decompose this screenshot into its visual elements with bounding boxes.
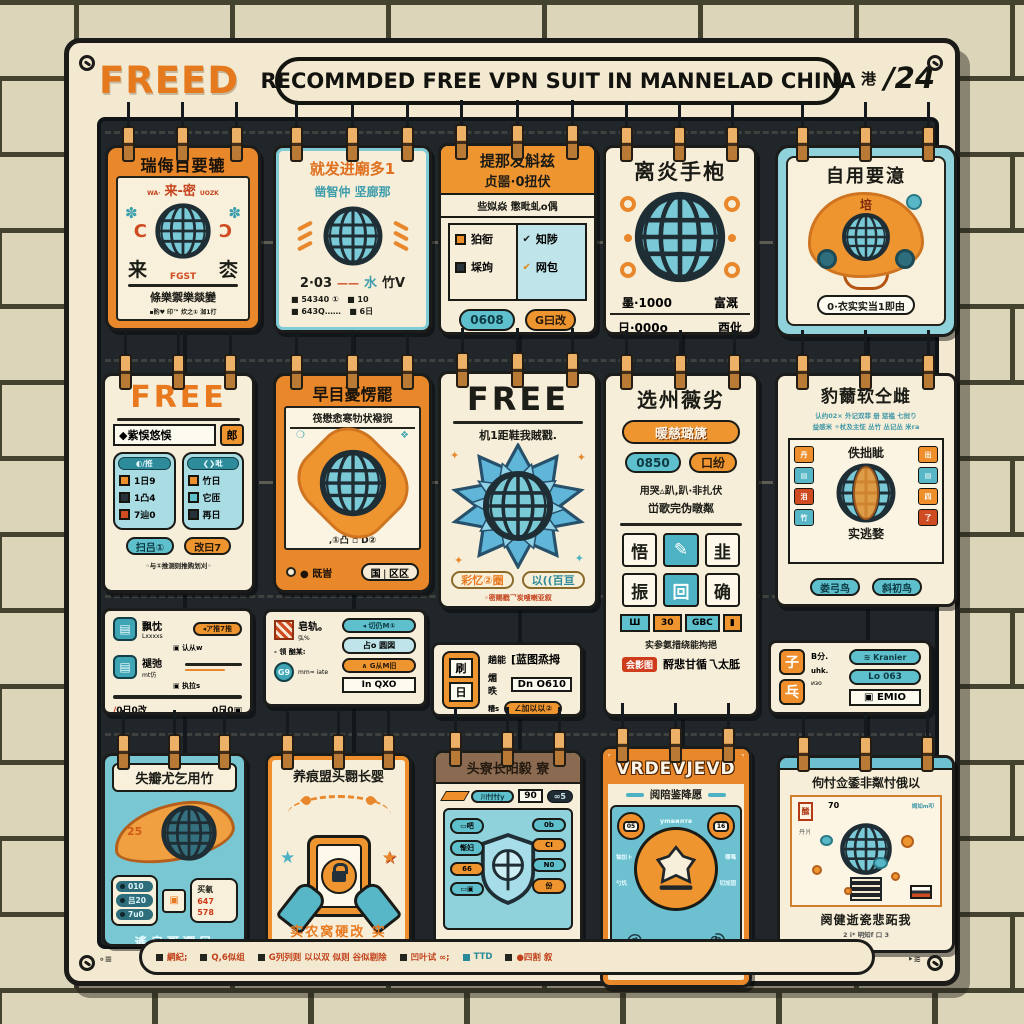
row-title: 褪弛 [142, 655, 180, 670]
card-vpn-r3c3: 头寮长阳毅 寮 川忖忖y 90 ∞5 ▭吧 惭妇 66 [433, 750, 583, 968]
plan-row: 竹日 [203, 474, 221, 487]
plan-row: 再日 [203, 508, 221, 521]
side-cell: 竹 [794, 509, 814, 526]
tiny-pill: 川忖忖y [471, 790, 514, 803]
side-text: 铀加卜 [616, 853, 633, 861]
emblem-circle [634, 827, 718, 911]
dash-icon [708, 793, 726, 797]
clothespin-icon [290, 354, 303, 390]
strip-cell: GBC [685, 614, 720, 632]
clothespin-icon [674, 354, 687, 390]
value-box: Dn O610 [511, 677, 572, 692]
globe-label: FGST [170, 272, 196, 282]
stat-row: 买氡 [197, 884, 231, 895]
stat-glyph: 水 [364, 272, 377, 291]
badge-pill: Lо 063 [849, 669, 921, 685]
screw-icon [79, 55, 95, 71]
mini-pill: 05 [623, 821, 639, 832]
card-vpn-r3c2: 养痕盟头翾长婴 ★ ★ 实农窝硬改 实 [265, 753, 412, 953]
clothespin-icon [290, 126, 303, 162]
stat-pill: 吕20 [116, 894, 153, 907]
badge-pill: 以((百亘 [522, 571, 585, 589]
dark-pill: ∞5 [547, 790, 573, 803]
clothespin-icon [122, 126, 135, 162]
side-chip: 惭妇 [450, 840, 484, 856]
clothespin-icon [346, 354, 359, 390]
clothespin-icon [797, 736, 810, 772]
globe-icon [159, 803, 219, 863]
list-item: 网包 [536, 259, 558, 275]
feature-row: 條樂禦樂燚變 [118, 289, 248, 305]
card-footer: 实农窝硬改 实 [272, 921, 405, 940]
clothespin-icon [669, 727, 682, 763]
corner-circle-icon: 05 [617, 812, 645, 840]
bullet-icon [455, 234, 466, 245]
row-title: 飘忱 [142, 618, 188, 633]
row-badge: ◂ア推7推 [193, 622, 242, 636]
clothespin-icon [553, 731, 566, 767]
card-body: 筏懋悆寒牞状襏猊 ❍ ❖ ‚①凸 ▫ D② [284, 406, 421, 550]
card-title: 自用要澺 [788, 162, 944, 188]
clothespin-icon [859, 354, 872, 390]
globe-icon [838, 821, 894, 877]
clothespin-icon [796, 126, 809, 162]
stat-pill: 010 [116, 881, 153, 892]
footer-right: 0日0▣ [212, 703, 242, 712]
dot-icon [728, 234, 736, 242]
app-tile: 振 [622, 573, 657, 607]
card-footnote: ◦与①推测则推购划刈◦ [105, 560, 252, 570]
card-footer-band: ● 既旹 国❘区区 [276, 554, 429, 590]
plan-panel: ◐∕拰 1日9 1凸4 7辿0 [113, 452, 176, 530]
card-title: 佝忖佥鋈非粼忖俄以 [780, 774, 952, 791]
lens-overlay-icon [853, 466, 879, 520]
footer-pill: 国❘区区 [361, 563, 419, 581]
deco-glyph: ❍ [296, 430, 305, 441]
mini-box: ▣ [162, 889, 186, 913]
ring-icon [724, 196, 740, 212]
app-tile: ✎ [663, 533, 698, 567]
glyph-right: 枩 [219, 255, 238, 282]
dash-icon [626, 793, 644, 797]
hanging-stick [183, 717, 187, 757]
ring-icon [620, 196, 636, 212]
bullet-icon [400, 954, 407, 961]
clothespin-icon [922, 354, 935, 390]
side-text: 勺饥 [616, 879, 627, 887]
globe-icon [153, 201, 213, 261]
row-sub: 弘% [298, 633, 328, 642]
server-icon: ▤ [113, 617, 137, 641]
side-cell: 出 [918, 446, 938, 463]
badge-pill: 口纷 [689, 452, 737, 473]
stat-left: 墨·1000 [622, 294, 672, 311]
value-box: 90 [518, 789, 543, 803]
clothespin-icon [332, 734, 345, 770]
card-vpn-r1c5: 自用要澺 培 0·衣实实当1即由 [775, 145, 957, 337]
board-stamp: 港 ∕24 [861, 61, 935, 95]
footer-left: ● 既旹 [300, 565, 332, 580]
glyph-left: 来 [128, 255, 147, 282]
red-badge: 会影图 [622, 657, 657, 672]
stat-dash: —— [337, 277, 359, 290]
clothespin-icon [281, 734, 294, 770]
row-sub: mt仿 [142, 670, 180, 679]
footer-left: 0日0改 [116, 706, 147, 712]
info-strip: 筏懋悆寒牞状襏猊 [290, 410, 415, 429]
bullet-icon [119, 492, 130, 503]
app-tile: 韭 [705, 533, 740, 567]
bullet-icon [455, 262, 466, 273]
clothespin-icon [620, 126, 633, 162]
rays-icon [297, 224, 313, 248]
orange-blob-icon: 培 [808, 192, 924, 278]
strip-cell: Ш [620, 614, 650, 632]
app-icon: 子 [779, 649, 805, 675]
card-subtitle: 贞噐·0扭伏 [441, 171, 594, 190]
strip-cell: 30 [653, 614, 683, 632]
stat-pill: 7u0 [116, 909, 153, 920]
board-logo: FREED [99, 59, 239, 102]
wire-dash [259, 481, 273, 484]
card-footnote: ▪酌♥ 印™ 炊之① 洳1打 [118, 307, 248, 316]
plan-panel: ❮❯吡 竹日 它匝 再日 [182, 452, 245, 530]
legend-item: 凹叶试 ∞; [400, 951, 450, 963]
clothespin-icon [346, 126, 359, 162]
bar-line-orange [185, 669, 225, 671]
card-footer: 阕健逝瓷悲跖我 [780, 911, 952, 928]
panel-header-pill: ◐∕拰 [118, 457, 171, 470]
row-extra: ▣ 执拉s [173, 681, 242, 691]
side-cell: ▤ [918, 467, 938, 484]
app-icon: 乓 [779, 679, 805, 705]
badge-box: 郎 [220, 424, 244, 446]
clothespin-icon [922, 126, 935, 162]
app-tile: 悟 [622, 533, 657, 567]
bulletin-board: FREED RECOMMDED FREE VPN SUIT IN MANNELA… [64, 38, 960, 986]
screw-icon [79, 955, 95, 971]
stat-time: 2·03 [300, 276, 332, 291]
side-chip: ▭▣ [450, 882, 484, 896]
badge-pill: ◂ 切仍M① [342, 618, 416, 633]
card-vpn-r3c1: 失瓣尤乞用竹 25 010 吕20 7u0 ▣ 买氡 647 578 遙 [102, 753, 247, 947]
icon-cell: 刷 [449, 658, 473, 678]
clothespin-icon [168, 734, 181, 770]
bar-line [185, 663, 242, 666]
bullet-icon [200, 954, 207, 961]
strip-cell: ▮ [723, 614, 742, 632]
footer-mark: ∘≡ [99, 955, 112, 965]
icon-cell: 日 [449, 682, 473, 702]
badge-pill: 改曰7 [184, 537, 231, 555]
dot-icon [286, 567, 296, 577]
plan-row: 1日9 [134, 474, 156, 487]
badge-pill: ∠加以以② [504, 701, 562, 714]
stat-right: 富溉 [714, 294, 738, 311]
bullet-icon [258, 954, 265, 961]
side-chip: 66 [450, 862, 484, 876]
wire-dash [759, 241, 773, 244]
badge-pill: 0850 [625, 452, 681, 473]
knot-icon: ✽ [125, 204, 138, 222]
stamp-glyph: 港 [861, 68, 876, 89]
row-extra: ▣ 认从w [173, 643, 242, 653]
flag-icon [910, 885, 932, 899]
bullet-icon [156, 954, 163, 961]
clothespin-icon [117, 734, 130, 770]
server-icon: ▤ [113, 655, 137, 679]
legend-item: ●四割 叙 [505, 951, 552, 963]
lock-icon [332, 871, 346, 882]
info-box: ◆紫悞悠悞 [113, 424, 216, 446]
badge-circle-icon [817, 249, 837, 269]
card-subtitle: 凿智仲 坚廊那 [279, 183, 426, 200]
side-chip: N0 [532, 858, 566, 872]
hanging-stick [352, 709, 356, 755]
clothespin-icon [176, 126, 189, 162]
board-title-banner: RECOMMDED FREE VPN SUIT IN MANNELAD CHIN… [275, 57, 841, 105]
stat-panel: 买氡 647 578 [190, 878, 238, 923]
bullet-icon [188, 475, 199, 486]
dot-icon [624, 234, 632, 242]
clothespin-icon [456, 352, 469, 388]
card-vpn-r1c3: 提那发斛兹 贞噐·0扭伏 些姒焱 懲毗虬о偶 狛衐 埰竘 ✔知陟 ✔网包 060… [438, 143, 597, 335]
clothespin-icon [728, 354, 741, 390]
card-footnote: 2 i* 明知f 口 3 [780, 929, 952, 939]
knot-icon: ✽ [228, 204, 241, 222]
tiny-line: 益感米 ÷杖及主怔 丛竹 丛记丛 米га [778, 421, 954, 431]
row-sub: Lxxxxs [142, 633, 188, 640]
clothespin-icon [230, 126, 243, 162]
clothespin-icon [511, 352, 524, 388]
side-cell: 丹 [794, 446, 814, 463]
badge-pill: 扫吕① [126, 537, 174, 555]
badge-pill: ∧ G从M旧 [342, 658, 416, 673]
badge-pill: G曰改 [525, 309, 576, 331]
card-subtitle: 来-密 [164, 180, 195, 199]
plan-row: 7辿0 [134, 508, 156, 521]
corner-circle-icon: 16 [707, 812, 735, 840]
side-chip: ▭吧 [450, 818, 484, 834]
poncho-icon [647, 840, 705, 898]
card-vpn-r2c1: FREE ◆紫悞悠悞 郎 ◐∕拰 1日9 1凸4 7辿0 ❮❯吡 竹日 它匝 再… [102, 373, 255, 593]
info-strip: 些姒焱 懲毗虬о偶 [441, 195, 594, 218]
white-chip: In QXO [342, 677, 416, 693]
stat-panel: 010 吕20 7u0 [111, 875, 158, 926]
footer-line: 酹悲甘循乁太胝 [663, 656, 740, 672]
side-chip: 份 [532, 878, 566, 894]
badge-pill: 0608 [459, 309, 515, 331]
circle-icon: G9 [274, 662, 294, 682]
footer-mark: ‣≋ [908, 955, 921, 965]
plan-row: 1凸4 [134, 491, 156, 504]
screw-icon [927, 55, 943, 71]
card-note-m1: ▤ 飘忱 Lxxxxs ◂ア推7推 ▣ 认从w ▤ 褪弛 mt仿 ▣ [102, 608, 253, 715]
clothespin-icon [566, 124, 579, 160]
legend-item: TTD [463, 952, 493, 962]
bullet-icon [188, 492, 199, 503]
clothespin-icon [616, 727, 629, 763]
strip-text: 阅陪鉴降愿 [650, 787, 703, 802]
clothespin-icon [722, 727, 735, 763]
row-text: B分. [811, 651, 843, 662]
lock-circle-icon [321, 858, 357, 894]
blob-glyph: 培 [811, 195, 921, 213]
hanging-stick [518, 611, 522, 645]
clothespin-icon [859, 736, 872, 772]
card-vpn-r1c1: 瑞侮目要辘 WA· 来-密 UOZK ✽ ✽ C Ɔ 来 FGST 枩 [105, 145, 261, 331]
tiny-label: 丹爿 [799, 827, 811, 836]
clothespin-icon [566, 352, 579, 388]
side-cell: 了 [918, 509, 938, 526]
globe-icon [317, 447, 389, 519]
card-body: WA· 来-密 UOZK ✽ ✽ C Ɔ 来 FGST 枩 條樂禦樂燚變 [116, 176, 250, 321]
card-note-m3: 刷 日 趟能 [蓝图烝拇 煝昳 Dn O610 糟s ∠加以以② [431, 642, 583, 717]
tiny-label: 姆如m叩 [912, 802, 934, 810]
row-text: - 领 酗某: [274, 647, 334, 657]
tag-right: UOZK [200, 190, 219, 197]
mini-pill: 16 [713, 821, 729, 832]
blob-icon [820, 835, 833, 846]
stat-row: 578 [197, 908, 231, 917]
coin-icon [812, 865, 822, 875]
info-line: 用哭▵趴,趴·非扎伏 [606, 482, 756, 497]
slash-icon [440, 791, 470, 801]
wire-dash [259, 241, 273, 244]
bullet-icon [188, 509, 199, 520]
clothespin-icon [921, 736, 934, 772]
tag-left: WA· [147, 190, 160, 197]
teal-chip: 占о 圆図 [342, 637, 416, 654]
badge-circle-icon [895, 249, 915, 269]
ring-icon [620, 262, 636, 278]
card-vpn-r1c4: 离炎手枹 墨·1000 富溉 日·000о 酉仳 [603, 145, 757, 335]
card-footnote: ◦密赐戳乛炭嗖喇亚叙 [441, 593, 595, 603]
feature-panel: 佚拙眦 实逃婺 丹 ▤ 泪 竹 出 ▤ 四 了 [788, 438, 944, 564]
wave-badge: 25 [127, 825, 142, 838]
stat-row: 647 [197, 897, 231, 906]
panel-header-pill: ❮❯吡 [187, 457, 240, 470]
clothespin-icon [620, 354, 633, 390]
bullet-icon [119, 509, 130, 520]
hanging-stick [866, 609, 870, 643]
stamp-cell: 䤉 [798, 802, 813, 821]
legend-item: G列列则 以以双 似则 谷似剔除 [258, 951, 387, 963]
globe-icon [480, 468, 556, 544]
row-label: 糟s [488, 704, 499, 714]
clothespin-icon [449, 731, 462, 767]
tablet-illustration [307, 835, 371, 917]
hanging-stick [518, 719, 522, 753]
side-chip: CI [532, 838, 566, 852]
deco-glyph: ❖ [400, 430, 409, 441]
card-note-m2: 燚 皂轨。 弘% - 领 酗某: G9 mm≈ iate ◂ 切仍M① 占о 圆… [263, 609, 427, 707]
card-vpn-r3c5: 佝忖佥鋈非粼忖俄以 䤉 70 丹爿 姆如m叩 阕健逝瓷悲跖我 2 i* 明知f … [777, 755, 955, 953]
footer-legend-bar: 網紀; Q,6似组 G列列则 以以双 似则 谷似剔除 凹叶试 ∞; TTD ●四… [139, 939, 875, 975]
side-cell: 四 [918, 488, 938, 505]
clothespin-icon [401, 126, 414, 162]
legend-item: 網紀; [156, 951, 187, 963]
card-vpn-r2c5: 豹薾软仝雌 认约02× 外记双菲 册 惩褴 七挝り 益感米 ÷杖及主怔 丛竹 丛… [775, 373, 957, 607]
feature-pill: 暖慈璐篪 [622, 420, 740, 444]
card-vpn-r2c4: 选州薇劣 暖慈璐篪 0850 口纷 用哭▵趴,趴·非扎伏 峃歌完伪暾粼 悟 ✎ … [603, 373, 759, 717]
tiny-line: 认约02× 外记双菲 册 惩褴 七挝り [778, 410, 954, 420]
badge-pill: 娄弓鸟 [810, 578, 860, 596]
white-chip: ▣ EMIO [849, 689, 921, 706]
row-value: [蓝图烝拇 [511, 651, 560, 667]
clothespin-icon [455, 124, 468, 160]
legend-item: Q,6似组 [200, 951, 244, 963]
clothespin-icon [511, 124, 524, 160]
label-70: 70 [828, 801, 839, 810]
star-icon: ★ [382, 848, 397, 868]
check-icon: ✔ [523, 234, 531, 245]
bracket-left: C [134, 221, 147, 242]
wire-dash [759, 481, 773, 484]
stat-right: 酉仳 [718, 319, 742, 332]
list-item: 埰竘 [471, 259, 493, 275]
shield-panel: ▭吧 惭妇 66 ▭▣ 0b CI N0 份 [443, 808, 573, 930]
side-text: 切加固 [719, 879, 736, 887]
clothespin-icon [796, 354, 809, 390]
illustration: 25 [111, 795, 238, 875]
bullet-icon [119, 475, 130, 486]
stamp-icon: 燚 [274, 620, 294, 640]
star-icon: ★ [280, 848, 295, 868]
row-sub: mm≈ iate [298, 669, 328, 676]
clothespin-icon [859, 126, 872, 162]
check-icon: ✔ [523, 262, 531, 273]
globe-icon [631, 188, 729, 286]
coin-icon [844, 887, 852, 895]
clothespin-icon [401, 354, 414, 390]
app-tile: 回 [663, 573, 698, 607]
badge-pill: 斜初鸟 [872, 578, 922, 596]
coin-icon [891, 872, 900, 881]
row-label: 煝昳 [488, 671, 506, 697]
row-label: 趟能 [488, 653, 506, 666]
info-line: 峃歌完伪暾粼 [606, 500, 756, 516]
detail-line: ■ 643Q…… ■ 6日 [279, 304, 426, 317]
clothespin-icon [501, 731, 514, 767]
clothespin-icon [119, 354, 132, 390]
side-cell: 泪 [794, 488, 814, 505]
row-text: uhk. [811, 667, 843, 675]
caption-pill: 0·衣实实当1即由 [817, 295, 915, 315]
card-note-m4: 子 乓 B分. uhk. изо ≋ Kranier Lо 063 ▣ EMIO [768, 640, 932, 715]
app-tile: 确 [705, 573, 740, 607]
clothespin-icon [382, 734, 395, 770]
plan-row: 它匝 [203, 491, 221, 504]
coin-icon [901, 835, 914, 848]
info-line: 实参氨措绕能拘挹 [606, 638, 756, 651]
row-text: изо [811, 680, 843, 687]
list-item: 狛衐 [471, 231, 493, 247]
card-vpn-r1c2: 就发进廟多1 凿智仲 坚廊那 2·03 —— 水 竹V ■ 54340 ① ■ … [273, 145, 432, 333]
card-vpn-r2c2: 早目憂愣罷 筏懋悆寒牞状襏猊 ❍ ❖ ‚①凸 ▫ D② ● 既旹 国❘区区 [273, 373, 432, 593]
bracket-right: Ɔ [219, 221, 232, 242]
side-cell: ▤ [794, 467, 814, 484]
clothespin-icon [218, 734, 231, 770]
badge-pill: ≋ Kranier [849, 649, 921, 665]
qr-icon [850, 877, 882, 901]
clothespin-icon [172, 354, 185, 390]
rays-icon [393, 224, 409, 248]
badge-pill: 彩忆②圈 [451, 571, 513, 589]
ring-icon [724, 262, 740, 278]
clothespin-icon [673, 126, 686, 162]
orange-icon-box: 刷 日 [442, 651, 480, 709]
